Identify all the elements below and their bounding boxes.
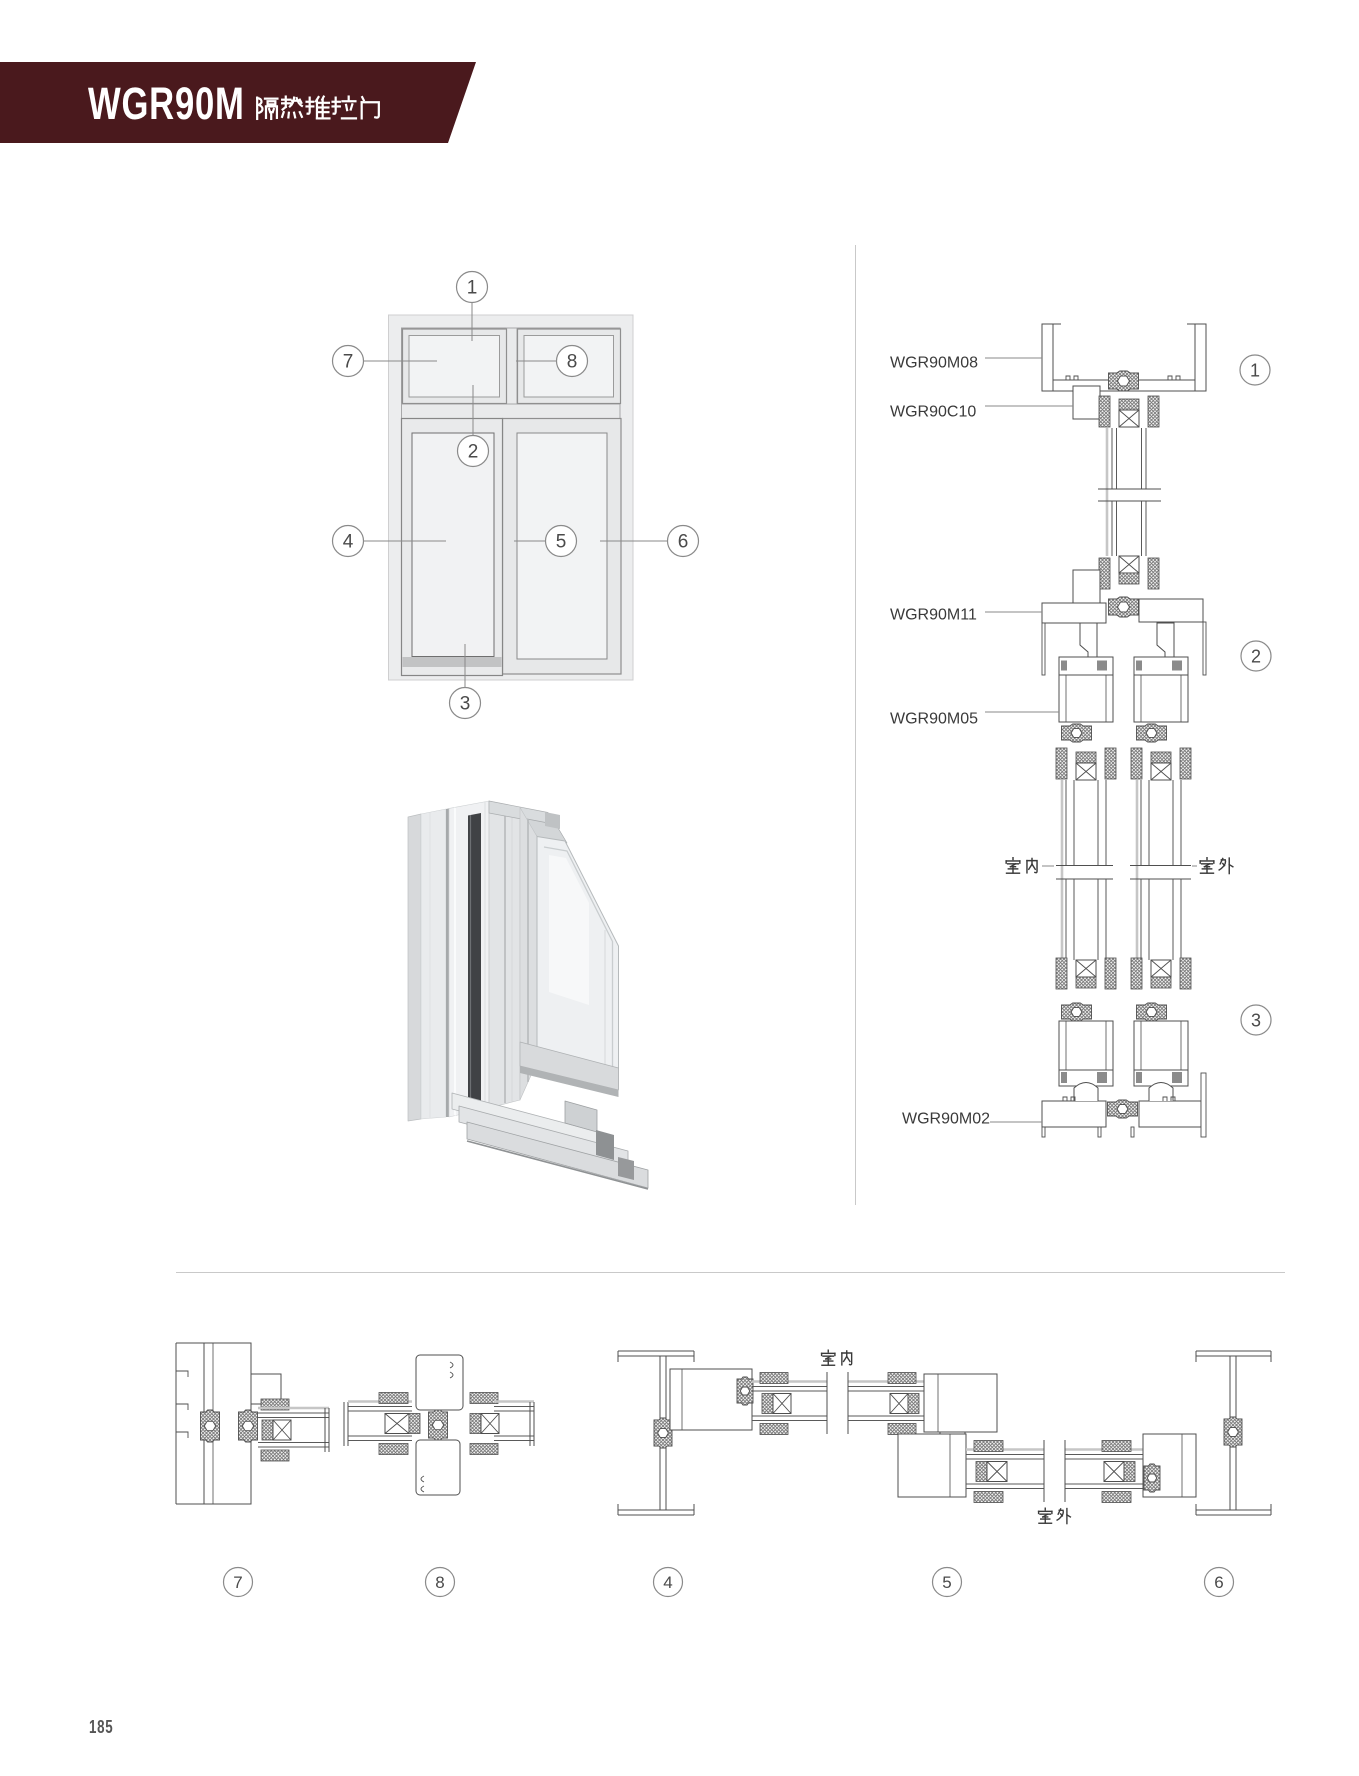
svg-text:6: 6 bbox=[678, 532, 689, 553]
svg-text:5: 5 bbox=[556, 532, 567, 553]
svg-text:3: 3 bbox=[1251, 1010, 1261, 1030]
svg-text:5: 5 bbox=[942, 1573, 951, 1592]
svg-text:WGR90M: WGR90M bbox=[88, 79, 245, 129]
svg-text:WGR90M11: WGR90M11 bbox=[890, 607, 977, 624]
svg-text:WGR90M02: WGR90M02 bbox=[902, 1111, 990, 1128]
svg-text:4: 4 bbox=[343, 532, 354, 553]
svg-text:185: 185 bbox=[89, 1717, 113, 1738]
svg-text:6: 6 bbox=[1214, 1573, 1223, 1592]
svg-text:2: 2 bbox=[468, 442, 479, 463]
svg-text:2: 2 bbox=[1251, 646, 1261, 666]
svg-text:8: 8 bbox=[567, 352, 578, 373]
svg-text:8: 8 bbox=[435, 1573, 444, 1592]
svg-text:4: 4 bbox=[663, 1573, 672, 1592]
svg-text:WGR90M08: WGR90M08 bbox=[890, 355, 978, 372]
svg-text:1: 1 bbox=[467, 278, 478, 299]
svg-text:7: 7 bbox=[233, 1573, 242, 1592]
svg-text:WGR90M05: WGR90M05 bbox=[890, 711, 978, 728]
svg-text:WGR90C10: WGR90C10 bbox=[890, 404, 976, 421]
svg-text:1: 1 bbox=[1250, 360, 1260, 380]
svg-text:3: 3 bbox=[460, 694, 471, 715]
svg-text:7: 7 bbox=[343, 352, 354, 373]
